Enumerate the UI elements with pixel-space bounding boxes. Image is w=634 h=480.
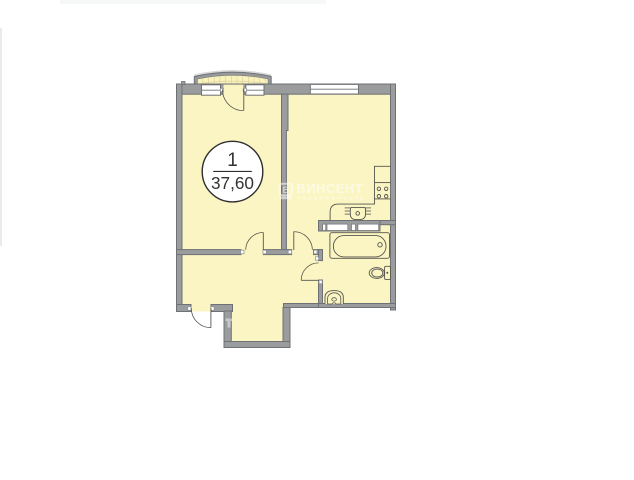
svg-text:B: B xyxy=(283,185,290,195)
svg-text:1: 1 xyxy=(227,150,238,171)
svg-text:ВИНСЕНТ: ВИНСЕНТ xyxy=(297,181,364,196)
svg-text:37,60: 37,60 xyxy=(211,173,254,193)
svg-text:НЕДВИЖИМОСТЬ: НЕДВИЖИМОСТЬ xyxy=(297,196,366,202)
